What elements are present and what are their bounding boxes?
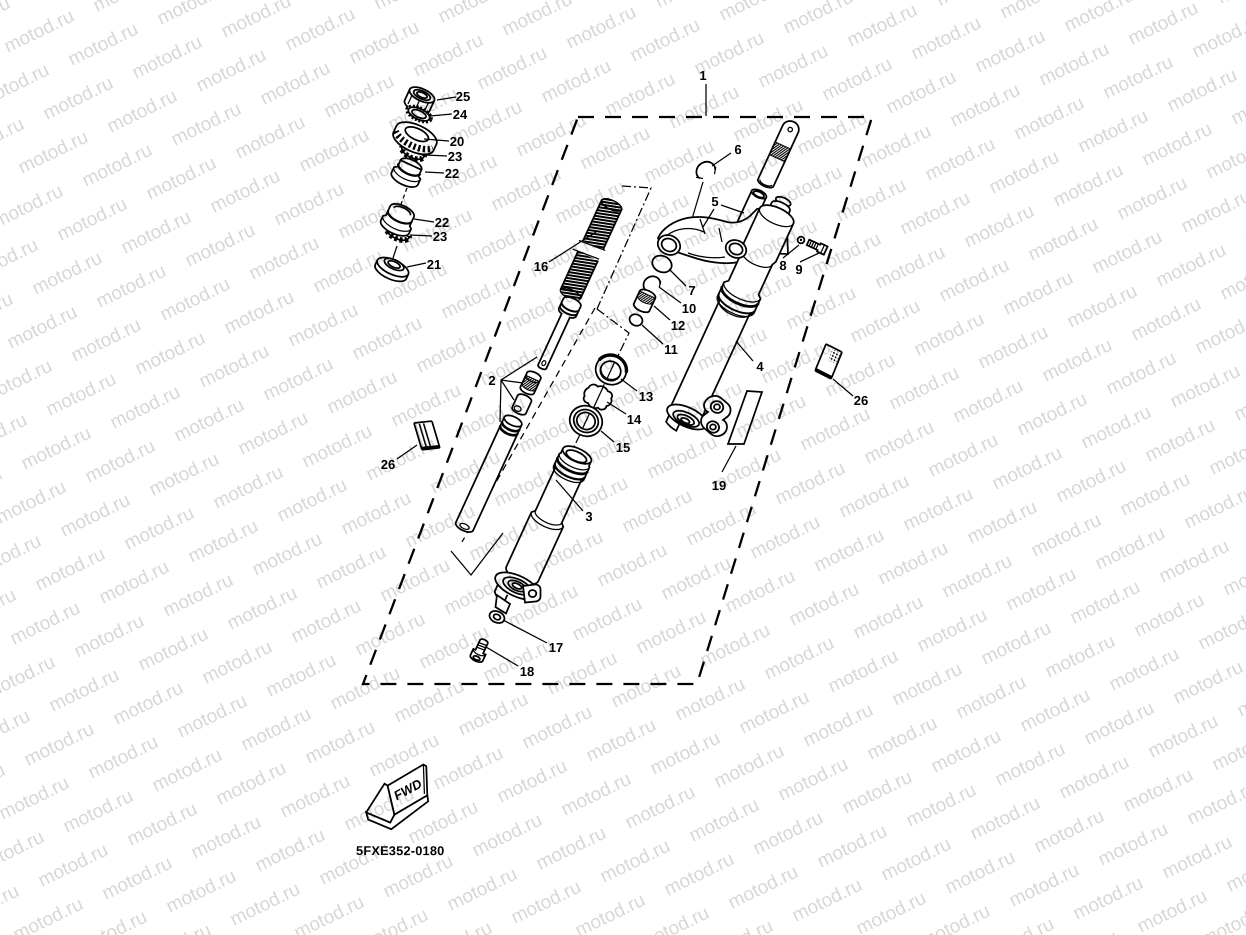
svg-text:24: 24 — [453, 107, 468, 122]
svg-text:9: 9 — [795, 262, 802, 277]
svg-text:23: 23 — [448, 149, 463, 164]
